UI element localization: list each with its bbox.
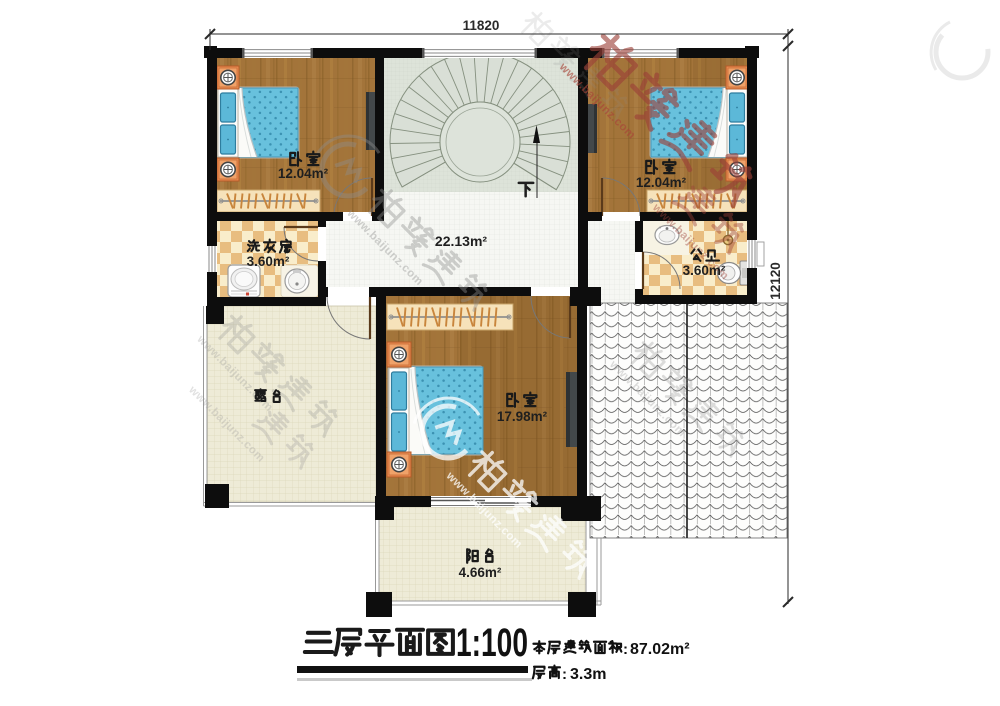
- svg-text::: :: [623, 641, 628, 658]
- svg-text:3.60m²: 3.60m²: [683, 263, 726, 278]
- svg-text:1:100: 1:100: [456, 621, 528, 665]
- svg-text:17.98m²: 17.98m²: [497, 409, 548, 424]
- svg-text::: :: [562, 666, 567, 683]
- svg-text:11820: 11820: [463, 18, 500, 33]
- svg-text:3.60m²: 3.60m²: [247, 254, 290, 269]
- svg-text:3.3m: 3.3m: [570, 666, 606, 683]
- svg-text:12120: 12120: [768, 262, 783, 300]
- svg-text:12.04m²: 12.04m²: [278, 166, 329, 181]
- svg-text:87.02m²: 87.02m²: [630, 641, 690, 658]
- svg-text:12.04m²: 12.04m²: [636, 175, 687, 190]
- svg-text:22.13m²: 22.13m²: [435, 233, 487, 249]
- svg-text:4.66m²: 4.66m²: [459, 565, 502, 580]
